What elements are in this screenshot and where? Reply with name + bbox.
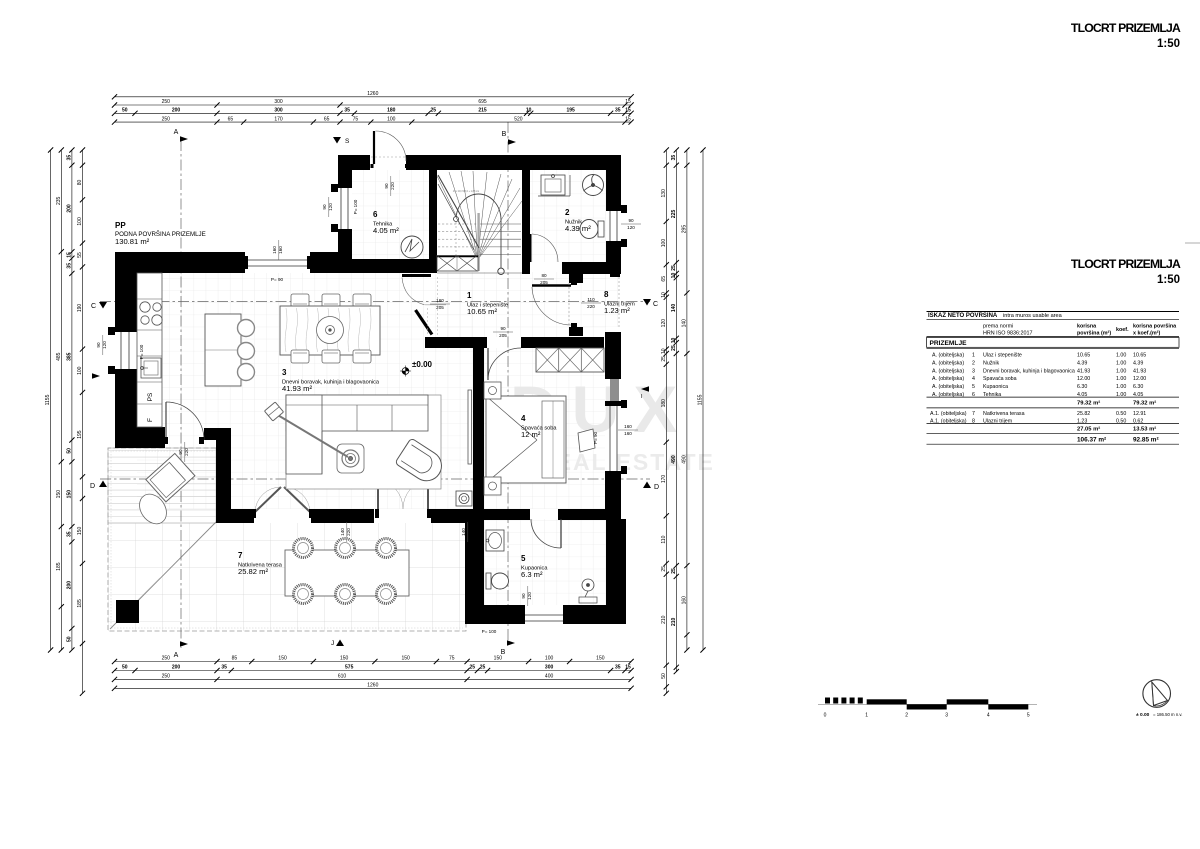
- svg-text:12.00: 12.00: [1077, 376, 1090, 382]
- svg-text:D: D: [654, 484, 659, 491]
- svg-text:10: 10: [661, 348, 667, 354]
- svg-text:1: 1: [972, 353, 975, 359]
- svg-text:1155: 1155: [698, 394, 704, 405]
- svg-text:25: 25: [661, 356, 667, 362]
- svg-text:100: 100: [387, 116, 396, 122]
- svg-text:300: 300: [274, 99, 283, 105]
- svg-text:25: 25: [469, 665, 475, 671]
- svg-text:210: 210: [671, 617, 677, 626]
- svg-text:610: 610: [338, 674, 347, 680]
- svg-text:215: 215: [478, 108, 487, 114]
- svg-text:PS: PS: [147, 392, 154, 401]
- svg-text:HRN ISO 9836:2017: HRN ISO 9836:2017: [983, 331, 1032, 337]
- svg-text:190: 190: [77, 304, 83, 313]
- svg-text:130: 130: [661, 189, 667, 198]
- svg-text:Dnevni boravak, kuhinja i blag: Dnevni boravak, kuhinja i blagovaonica: [983, 368, 1075, 374]
- svg-text:koef.: koef.: [1116, 327, 1129, 333]
- svg-text:150: 150: [56, 490, 62, 499]
- svg-text:površina (m²): površina (m²): [1077, 331, 1111, 337]
- svg-text:± 0.00: ± 0.00: [1136, 712, 1150, 718]
- svg-text:180: 180: [661, 399, 667, 408]
- svg-text:300: 300: [274, 108, 283, 114]
- svg-text:80: 80: [77, 180, 83, 186]
- svg-text:TLOCRT PRIZEMLJA: TLOCRT PRIZEMLJA: [1071, 257, 1181, 271]
- svg-text:150: 150: [66, 490, 72, 499]
- svg-text:16 x 18,7/25,0 + 1,88 cm: 16 x 18,7/25,0 + 1,88 cm: [453, 190, 479, 193]
- svg-text:485: 485: [56, 352, 62, 361]
- svg-text:92.85 m²: 92.85 m²: [1133, 436, 1159, 443]
- svg-text:41.93: 41.93: [1077, 368, 1090, 374]
- svg-text:1.00: 1.00: [1116, 376, 1126, 382]
- svg-text:150: 150: [596, 656, 605, 662]
- svg-text:235: 235: [56, 196, 62, 205]
- svg-text:C: C: [653, 301, 658, 308]
- svg-text:12 m²: 12 m²: [521, 430, 541, 439]
- svg-text:1:50: 1:50: [1157, 274, 1180, 286]
- svg-text:55: 55: [77, 252, 83, 258]
- svg-text:170: 170: [274, 116, 283, 122]
- svg-text:S: S: [345, 138, 350, 145]
- svg-text:intra muros usable area: intra muros usable area: [1003, 313, 1063, 319]
- svg-text:170: 170: [661, 475, 667, 484]
- svg-text:75: 75: [353, 116, 359, 122]
- svg-text:korisna: korisna: [1077, 324, 1097, 330]
- svg-text:195: 195: [566, 108, 575, 114]
- svg-text:65: 65: [324, 116, 330, 122]
- svg-text:korisna površina: korisna površina: [1133, 324, 1177, 330]
- svg-text:6.3 m²: 6.3 m²: [521, 570, 543, 579]
- svg-text:25: 25: [661, 566, 667, 572]
- svg-text:225: 225: [671, 210, 677, 219]
- svg-text:106.37 m²: 106.37 m²: [1077, 436, 1106, 443]
- svg-text:150: 150: [494, 656, 503, 662]
- svg-text:90: 90: [178, 449, 183, 455]
- svg-text:10: 10: [671, 337, 677, 343]
- svg-text:1260: 1260: [367, 683, 378, 689]
- svg-text:4.39: 4.39: [1133, 360, 1143, 366]
- svg-text:35: 35: [615, 665, 621, 671]
- svg-text:250: 250: [162, 99, 171, 105]
- svg-text:D: D: [90, 483, 95, 490]
- svg-text:12.00: 12.00: [1133, 376, 1146, 382]
- svg-text:5: 5: [1027, 713, 1030, 719]
- svg-text:15: 15: [625, 99, 631, 105]
- svg-text:35: 35: [66, 263, 72, 269]
- svg-text:41.93 m²: 41.93 m²: [282, 384, 312, 393]
- svg-text:3: 3: [945, 713, 948, 719]
- svg-text:35: 35: [221, 665, 227, 671]
- svg-text:25: 25: [480, 665, 486, 671]
- svg-text:90: 90: [384, 183, 389, 189]
- svg-text:A. (obiteljska): A. (obiteljska): [932, 376, 964, 382]
- svg-text:400: 400: [545, 674, 554, 680]
- svg-text:4: 4: [987, 713, 990, 719]
- svg-text:15: 15: [625, 116, 631, 122]
- svg-text:150: 150: [77, 527, 83, 536]
- svg-text:160: 160: [681, 596, 687, 605]
- svg-text:575: 575: [345, 665, 354, 671]
- svg-text:10.65 m²: 10.65 m²: [467, 307, 497, 316]
- svg-text:140: 140: [461, 528, 466, 536]
- svg-text:A. (obiteljska): A. (obiteljska): [932, 353, 964, 359]
- svg-text:Kupaonica: Kupaonica: [983, 384, 1008, 390]
- svg-text:25: 25: [431, 108, 437, 114]
- svg-text:2: 2: [565, 208, 570, 217]
- svg-text:490: 490: [681, 455, 687, 464]
- svg-text:27.05 m²: 27.05 m²: [1077, 426, 1100, 433]
- svg-text:185: 185: [56, 562, 62, 571]
- svg-text:ISKAZ NETO POVRŠINA: ISKAZ NETO POVRŠINA: [928, 311, 998, 319]
- svg-text:25.82 m²: 25.82 m²: [238, 567, 268, 576]
- svg-text:6.30: 6.30: [1133, 384, 1143, 390]
- svg-text:1.00: 1.00: [1116, 384, 1126, 390]
- svg-text:250: 250: [162, 674, 171, 680]
- svg-text:25: 25: [671, 265, 677, 271]
- svg-text:P= 100: P= 100: [139, 344, 144, 359]
- svg-text:15: 15: [625, 665, 631, 671]
- svg-text:10: 10: [671, 273, 677, 279]
- svg-text:PP: PP: [115, 221, 126, 230]
- svg-text:120: 120: [661, 319, 667, 328]
- svg-text:250: 250: [162, 656, 171, 662]
- svg-text:5: 5: [972, 384, 975, 390]
- svg-text:195: 195: [77, 430, 83, 439]
- svg-text:4: 4: [521, 414, 526, 423]
- svg-text:15: 15: [625, 108, 631, 114]
- svg-text:200: 200: [172, 108, 181, 114]
- svg-text:110: 110: [661, 535, 667, 543]
- svg-text:35: 35: [615, 108, 621, 114]
- svg-text:75: 75: [449, 656, 455, 662]
- svg-text:P= 100: P= 100: [353, 199, 358, 214]
- svg-text:120: 120: [627, 225, 635, 230]
- svg-text:130.81 m²: 130.81 m²: [115, 237, 150, 246]
- svg-text:J: J: [331, 640, 334, 647]
- svg-text:A. (obiteljska): A. (obiteljska): [932, 368, 964, 374]
- svg-text:100: 100: [661, 239, 667, 248]
- svg-text:110: 110: [587, 297, 595, 302]
- svg-text:1: 1: [467, 291, 472, 300]
- svg-text:6.30: 6.30: [1077, 384, 1087, 390]
- svg-text:13.53 m²: 13.53 m²: [1133, 426, 1156, 433]
- svg-text:2: 2: [905, 713, 908, 719]
- svg-text:160: 160: [272, 246, 277, 254]
- svg-text:90: 90: [628, 218, 634, 223]
- svg-text:P= 100: P= 100: [482, 629, 497, 634]
- svg-text:79.32 m²: 79.32 m²: [1077, 400, 1100, 407]
- svg-text:185: 185: [77, 599, 83, 608]
- svg-text:210: 210: [661, 615, 667, 624]
- svg-text:TLOCRT PRIZEMLJA: TLOCRT PRIZEMLJA: [1071, 21, 1181, 35]
- svg-text:65: 65: [228, 116, 234, 122]
- svg-text:490: 490: [671, 455, 677, 464]
- svg-text:80: 80: [541, 273, 547, 278]
- svg-text:205: 205: [436, 305, 444, 310]
- svg-text:300: 300: [545, 665, 554, 671]
- svg-text:= 186.50 m n.v.: = 186.50 m n.v.: [1153, 712, 1182, 717]
- svg-text:35: 35: [344, 108, 350, 114]
- svg-text:205: 205: [499, 333, 507, 338]
- svg-text:220: 220: [587, 304, 595, 309]
- svg-text:1.23 m²: 1.23 m²: [604, 306, 630, 315]
- svg-text:B: B: [502, 131, 507, 138]
- svg-text:25.82: 25.82: [1077, 411, 1090, 417]
- svg-text:4.05 m²: 4.05 m²: [373, 226, 399, 235]
- svg-text:50: 50: [122, 108, 128, 114]
- svg-text:0.50: 0.50: [1116, 411, 1126, 417]
- svg-text:7: 7: [972, 411, 975, 417]
- svg-text:25: 25: [671, 345, 677, 351]
- svg-text:1.00: 1.00: [1116, 368, 1126, 374]
- svg-text:200: 200: [66, 204, 72, 213]
- svg-text:160: 160: [624, 431, 632, 436]
- svg-text:140: 140: [671, 304, 677, 313]
- svg-text:50: 50: [66, 448, 72, 454]
- svg-text:15: 15: [66, 252, 72, 258]
- svg-text:6: 6: [373, 210, 378, 219]
- svg-text:A. (obiteljska): A. (obiteljska): [932, 360, 964, 366]
- svg-text:3: 3: [972, 368, 975, 374]
- svg-text:50: 50: [122, 665, 128, 671]
- svg-text:4: 4: [972, 376, 975, 382]
- svg-text:4.39: 4.39: [1077, 360, 1087, 366]
- svg-text:Natkrivena terasa: Natkrivena terasa: [983, 411, 1025, 417]
- svg-text:1.00: 1.00: [1116, 353, 1126, 359]
- svg-text:25: 25: [671, 568, 677, 574]
- svg-text:35: 35: [66, 155, 72, 161]
- svg-text:Spavaća soba: Spavaća soba: [983, 376, 1017, 382]
- svg-text:295: 295: [681, 225, 687, 234]
- svg-text:90: 90: [96, 342, 101, 348]
- svg-text:1260: 1260: [367, 91, 378, 97]
- svg-text:100: 100: [545, 656, 554, 662]
- svg-text:5: 5: [521, 554, 526, 563]
- svg-text:A.1. (obiteljska): A.1. (obiteljska): [930, 411, 967, 417]
- svg-text:90: 90: [322, 204, 327, 210]
- svg-text:160: 160: [436, 298, 444, 303]
- svg-text:7: 7: [238, 551, 243, 560]
- svg-text:85: 85: [232, 656, 238, 662]
- svg-text:3: 3: [282, 368, 287, 377]
- svg-text:10.65: 10.65: [1077, 353, 1090, 359]
- svg-text:90: 90: [500, 326, 506, 331]
- svg-text:10: 10: [661, 292, 667, 298]
- svg-text:200: 200: [66, 581, 72, 590]
- svg-text:150: 150: [278, 656, 287, 662]
- svg-text:150: 150: [340, 656, 349, 662]
- svg-text:65: 65: [661, 276, 667, 282]
- svg-text:prema normi: prema normi: [983, 324, 1013, 330]
- svg-text:1:50: 1:50: [1157, 38, 1180, 50]
- svg-text:1.00: 1.00: [1116, 360, 1126, 366]
- svg-text:0: 0: [824, 713, 827, 719]
- svg-text:180: 180: [387, 108, 396, 114]
- svg-text:10: 10: [526, 108, 532, 114]
- svg-text:520: 520: [514, 116, 523, 122]
- svg-text:8: 8: [604, 290, 609, 299]
- svg-text:12.91: 12.91: [1133, 411, 1146, 417]
- svg-text:A. (obiteljska): A. (obiteljska): [932, 384, 964, 390]
- svg-text:150: 150: [401, 656, 410, 662]
- svg-text:B: B: [501, 649, 506, 656]
- svg-text:x koef.(m²): x koef.(m²): [1133, 331, 1160, 337]
- svg-text:100: 100: [77, 366, 83, 375]
- svg-text:160: 160: [624, 424, 632, 429]
- svg-text:10.65: 10.65: [1133, 353, 1146, 359]
- svg-text:Ulaz i stepenište: Ulaz i stepenište: [983, 353, 1022, 359]
- svg-text:Nužnik: Nužnik: [983, 360, 1000, 366]
- svg-text:100: 100: [77, 217, 83, 226]
- svg-text:50: 50: [66, 636, 72, 642]
- svg-text:79.32 m²: 79.32 m²: [1133, 400, 1156, 407]
- svg-text:205: 205: [540, 280, 548, 285]
- svg-text:2: 2: [972, 360, 975, 366]
- svg-text:695: 695: [478, 99, 487, 105]
- svg-text:1155: 1155: [45, 394, 51, 405]
- svg-text:C: C: [91, 303, 96, 310]
- svg-text:A: A: [174, 652, 179, 659]
- svg-text:41.93: 41.93: [1133, 368, 1146, 374]
- svg-text:90: 90: [521, 593, 526, 599]
- svg-text:140: 140: [681, 319, 687, 328]
- svg-text:A: A: [174, 129, 179, 136]
- svg-text:385: 385: [66, 352, 72, 361]
- svg-text:1: 1: [865, 713, 868, 719]
- svg-text:4.39 m²: 4.39 m²: [565, 224, 591, 233]
- svg-text:140: 140: [340, 528, 345, 536]
- svg-text:F: F: [147, 418, 154, 422]
- svg-text:P= 90: P= 90: [593, 431, 598, 444]
- svg-text:250: 250: [162, 116, 171, 122]
- svg-text:50: 50: [661, 673, 667, 679]
- svg-text:±0.00: ±0.00: [412, 360, 433, 369]
- svg-text:200: 200: [172, 665, 181, 671]
- svg-text:35: 35: [671, 155, 677, 161]
- svg-text:PRIZEMLJE: PRIZEMLJE: [930, 340, 968, 347]
- svg-text:35: 35: [66, 531, 72, 537]
- svg-text:P= 90: P= 90: [271, 277, 284, 282]
